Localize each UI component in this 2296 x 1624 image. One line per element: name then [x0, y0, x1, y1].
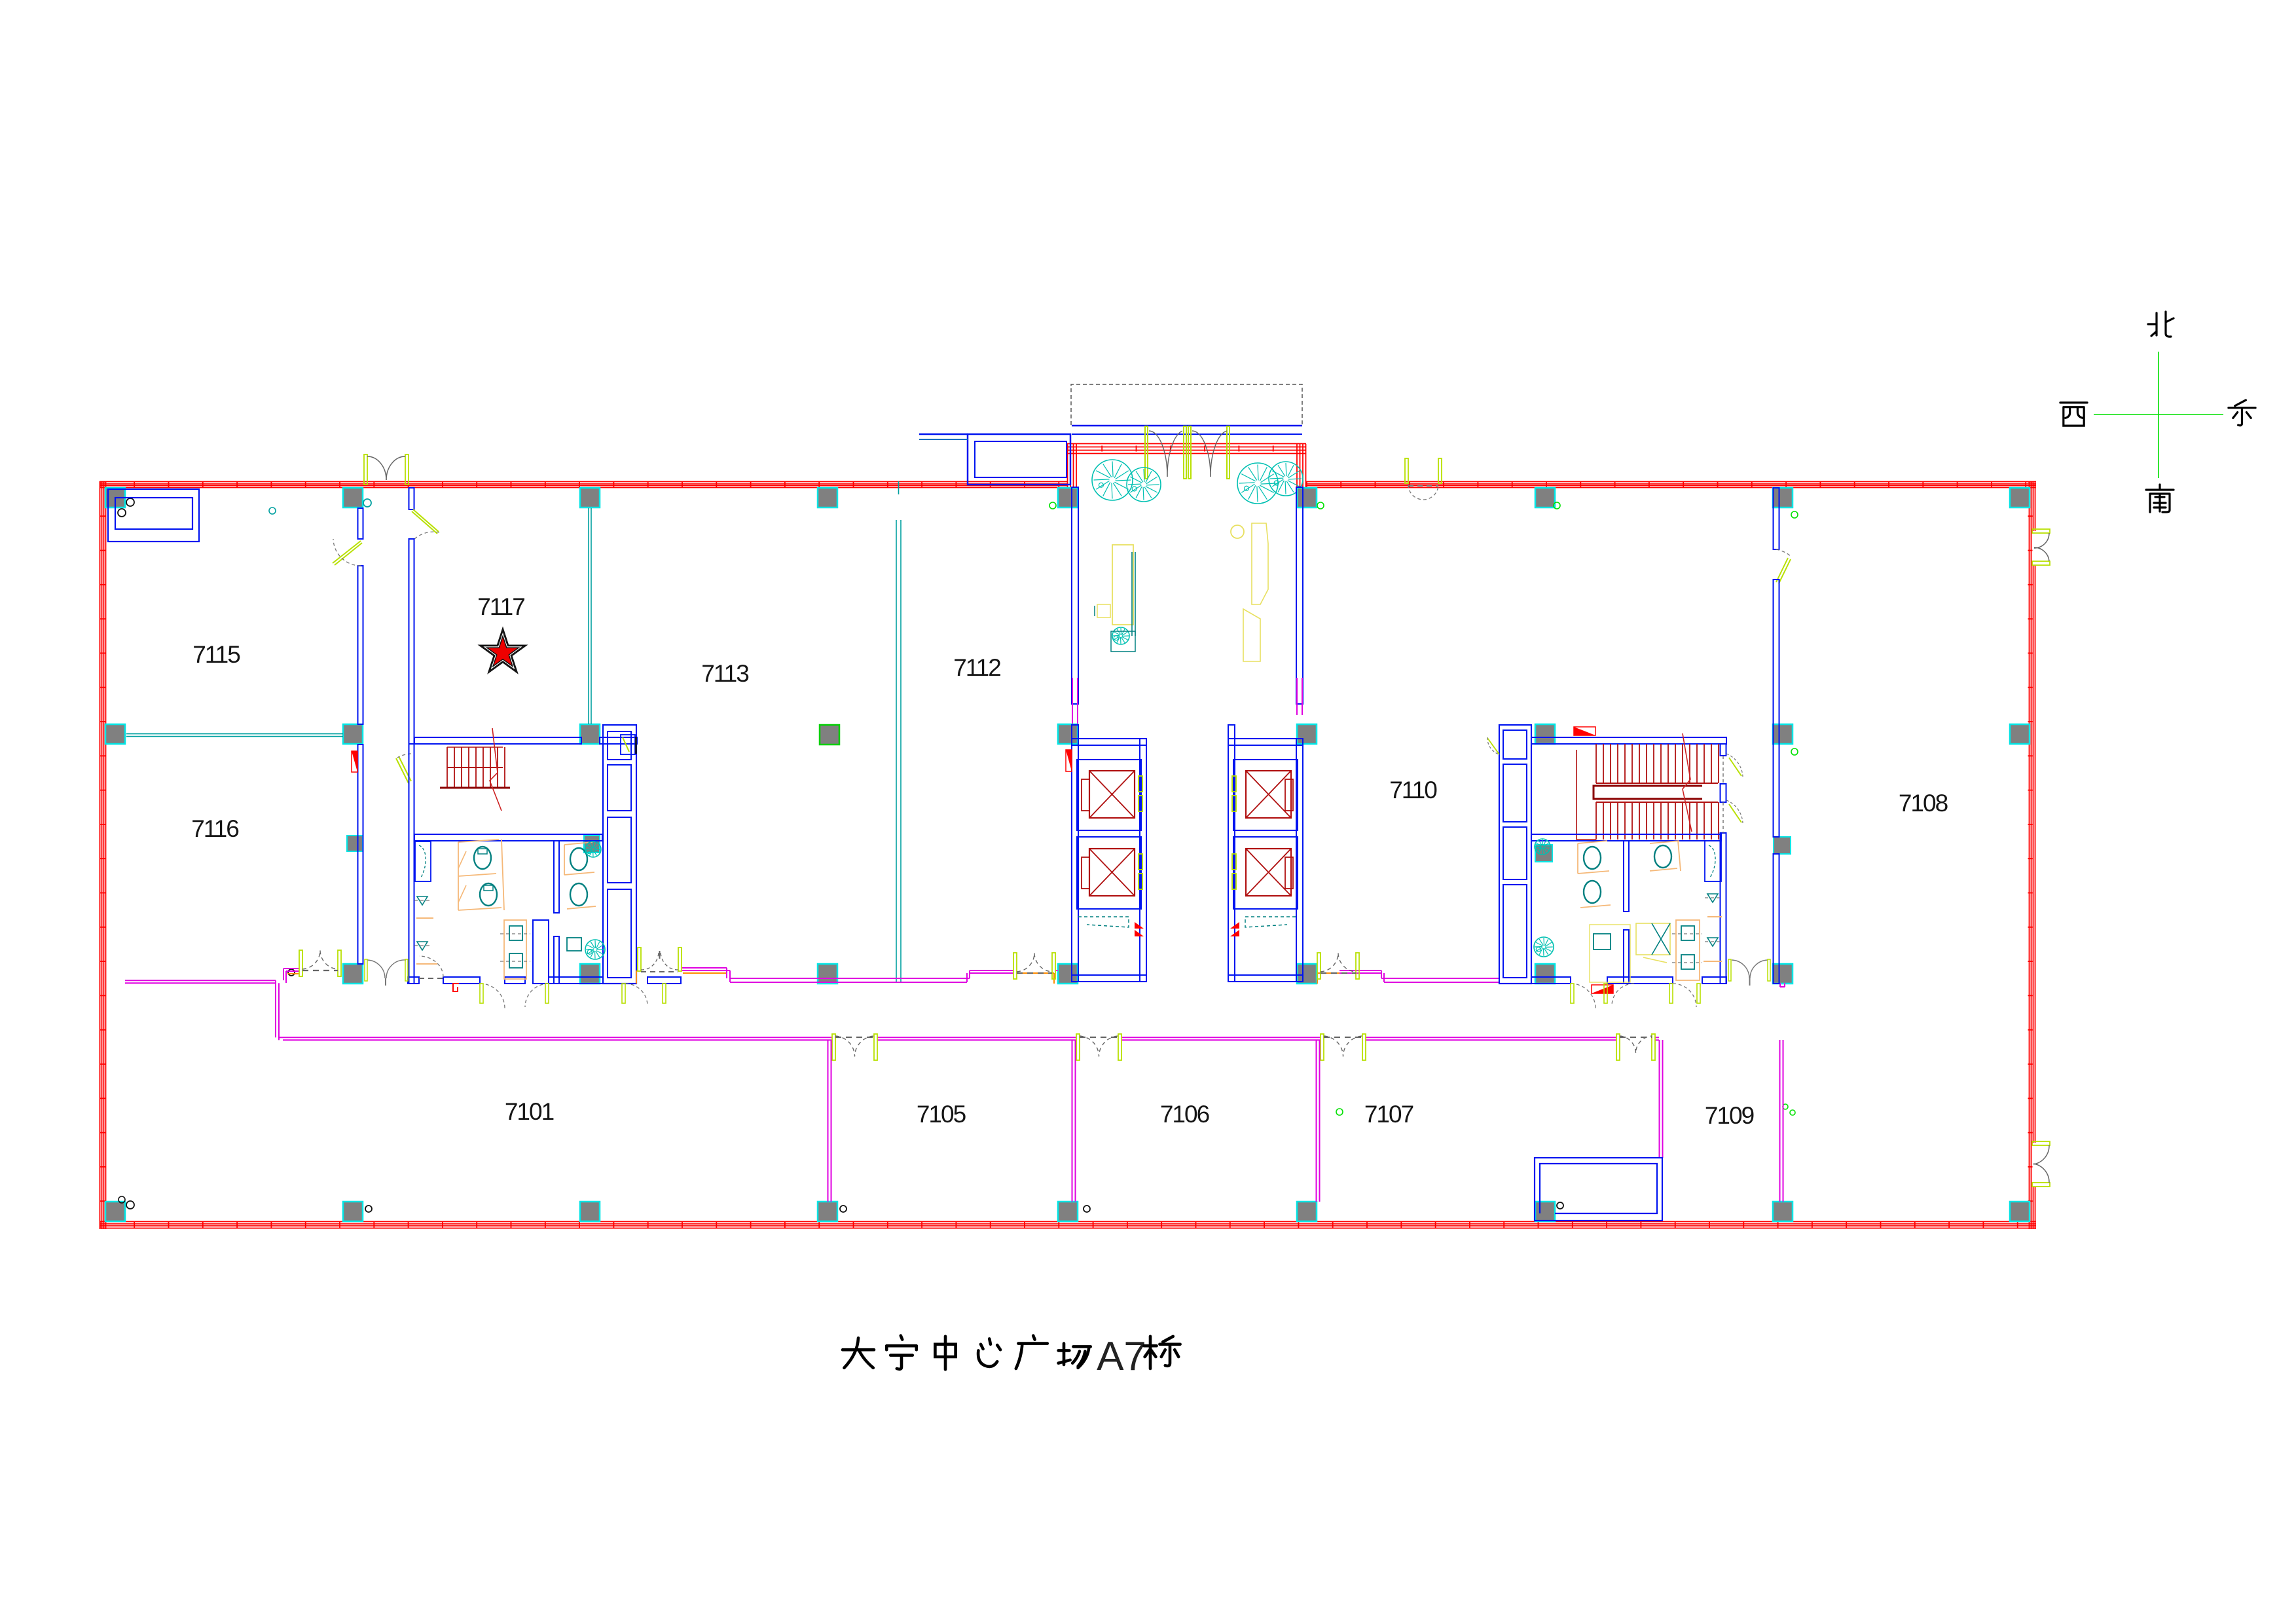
svg-text:7105: 7105 — [917, 1101, 966, 1128]
svg-text:7107: 7107 — [1364, 1101, 1413, 1128]
svg-text:7116: 7116 — [191, 815, 238, 842]
svg-text:7113: 7113 — [701, 660, 748, 687]
svg-text:7109: 7109 — [1705, 1102, 1754, 1129]
svg-text:7117: 7117 — [477, 593, 524, 620]
svg-text:7112: 7112 — [953, 654, 1000, 681]
svg-text:A7: A7 — [1097, 1334, 1146, 1379]
svg-text:7106: 7106 — [1160, 1101, 1209, 1128]
svg-text:7110: 7110 — [1389, 777, 1437, 803]
svg-text:7101: 7101 — [505, 1098, 554, 1125]
svg-text:7115: 7115 — [192, 641, 240, 668]
svg-text:7108: 7108 — [1899, 790, 1948, 817]
